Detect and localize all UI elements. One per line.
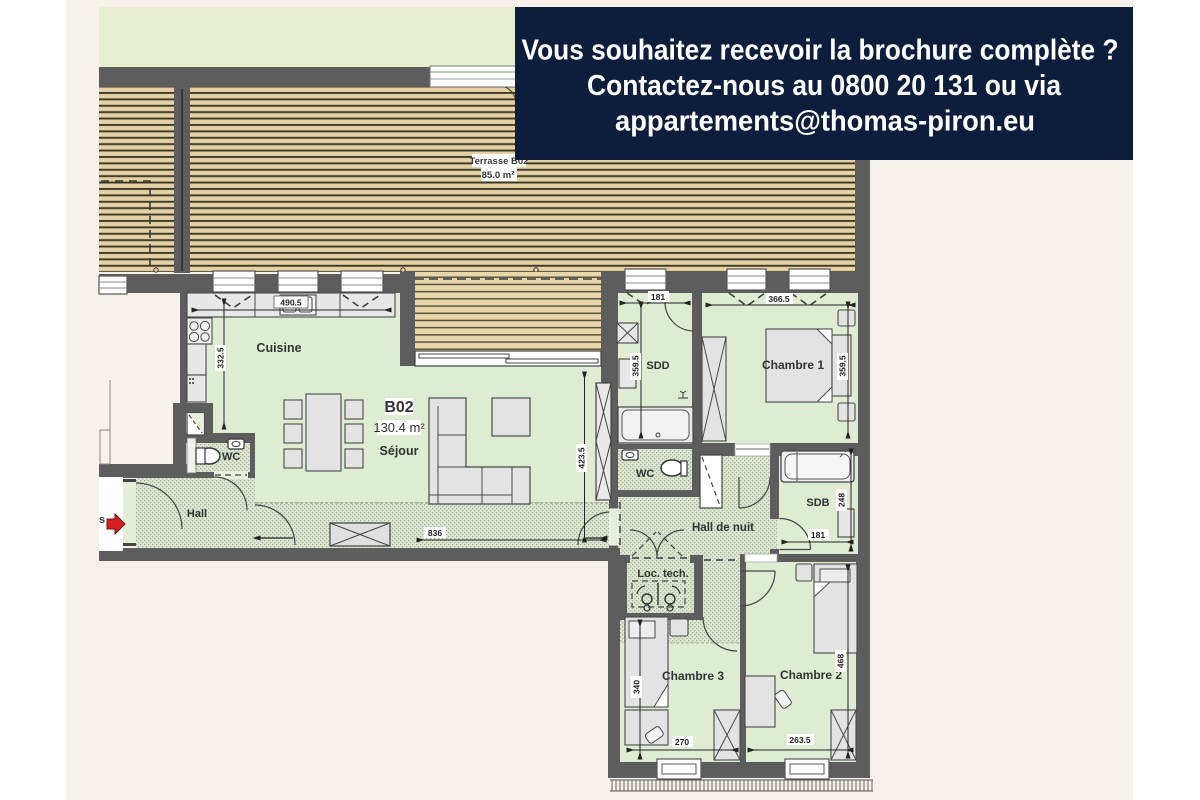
svg-text:248: 248 xyxy=(837,493,847,507)
svg-text:SDD: SDD xyxy=(646,360,669,372)
svg-text:468: 468 xyxy=(836,654,846,668)
svg-text:Hall: Hall xyxy=(187,508,207,520)
svg-text:s: s xyxy=(99,514,105,526)
svg-text:SDB: SDB xyxy=(806,497,829,509)
svg-text:490.5: 490.5 xyxy=(280,298,302,308)
svg-text:181: 181 xyxy=(811,530,825,540)
svg-text:340: 340 xyxy=(632,680,642,694)
svg-text:85.0 m²: 85.0 m² xyxy=(482,170,515,181)
svg-text:Chambre 1: Chambre 1 xyxy=(762,358,824,372)
svg-text:359.5: 359.5 xyxy=(838,355,848,377)
svg-text:Hall de nuit: Hall de nuit xyxy=(692,522,754,534)
svg-text:B02: B02 xyxy=(384,399,413,416)
svg-text:Loc. tech.: Loc. tech. xyxy=(637,568,688,580)
svg-text:836: 836 xyxy=(428,528,442,538)
svg-text:Chambre 2: Chambre 2 xyxy=(780,668,842,682)
svg-text:Contactez-nous au 0800 20 131: Contactez-nous au 0800 20 131 ou via xyxy=(587,70,1062,102)
svg-text:Cuisine: Cuisine xyxy=(256,341,301,355)
svg-text:181: 181 xyxy=(651,292,665,302)
svg-text:332.5: 332.5 xyxy=(216,347,226,369)
svg-text:130.4 m²: 130.4 m² xyxy=(373,420,425,435)
svg-text:WC: WC xyxy=(636,468,654,480)
svg-text:263.5: 263.5 xyxy=(789,735,811,745)
svg-text:359.5: 359.5 xyxy=(631,355,641,377)
svg-text:270: 270 xyxy=(675,737,689,747)
svg-text:Chambre 3: Chambre 3 xyxy=(662,669,724,683)
svg-text:Séjour: Séjour xyxy=(380,444,419,458)
svg-text:appartements@thomas-piron.eu: appartements@thomas-piron.eu xyxy=(615,106,1035,138)
svg-text:WC: WC xyxy=(222,451,240,463)
svg-text:366.5: 366.5 xyxy=(768,294,790,304)
svg-text:Vous souhaitez recevoir la bro: Vous souhaitez recevoir la brochure comp… xyxy=(522,35,1119,67)
svg-text:423.5: 423.5 xyxy=(577,447,587,469)
